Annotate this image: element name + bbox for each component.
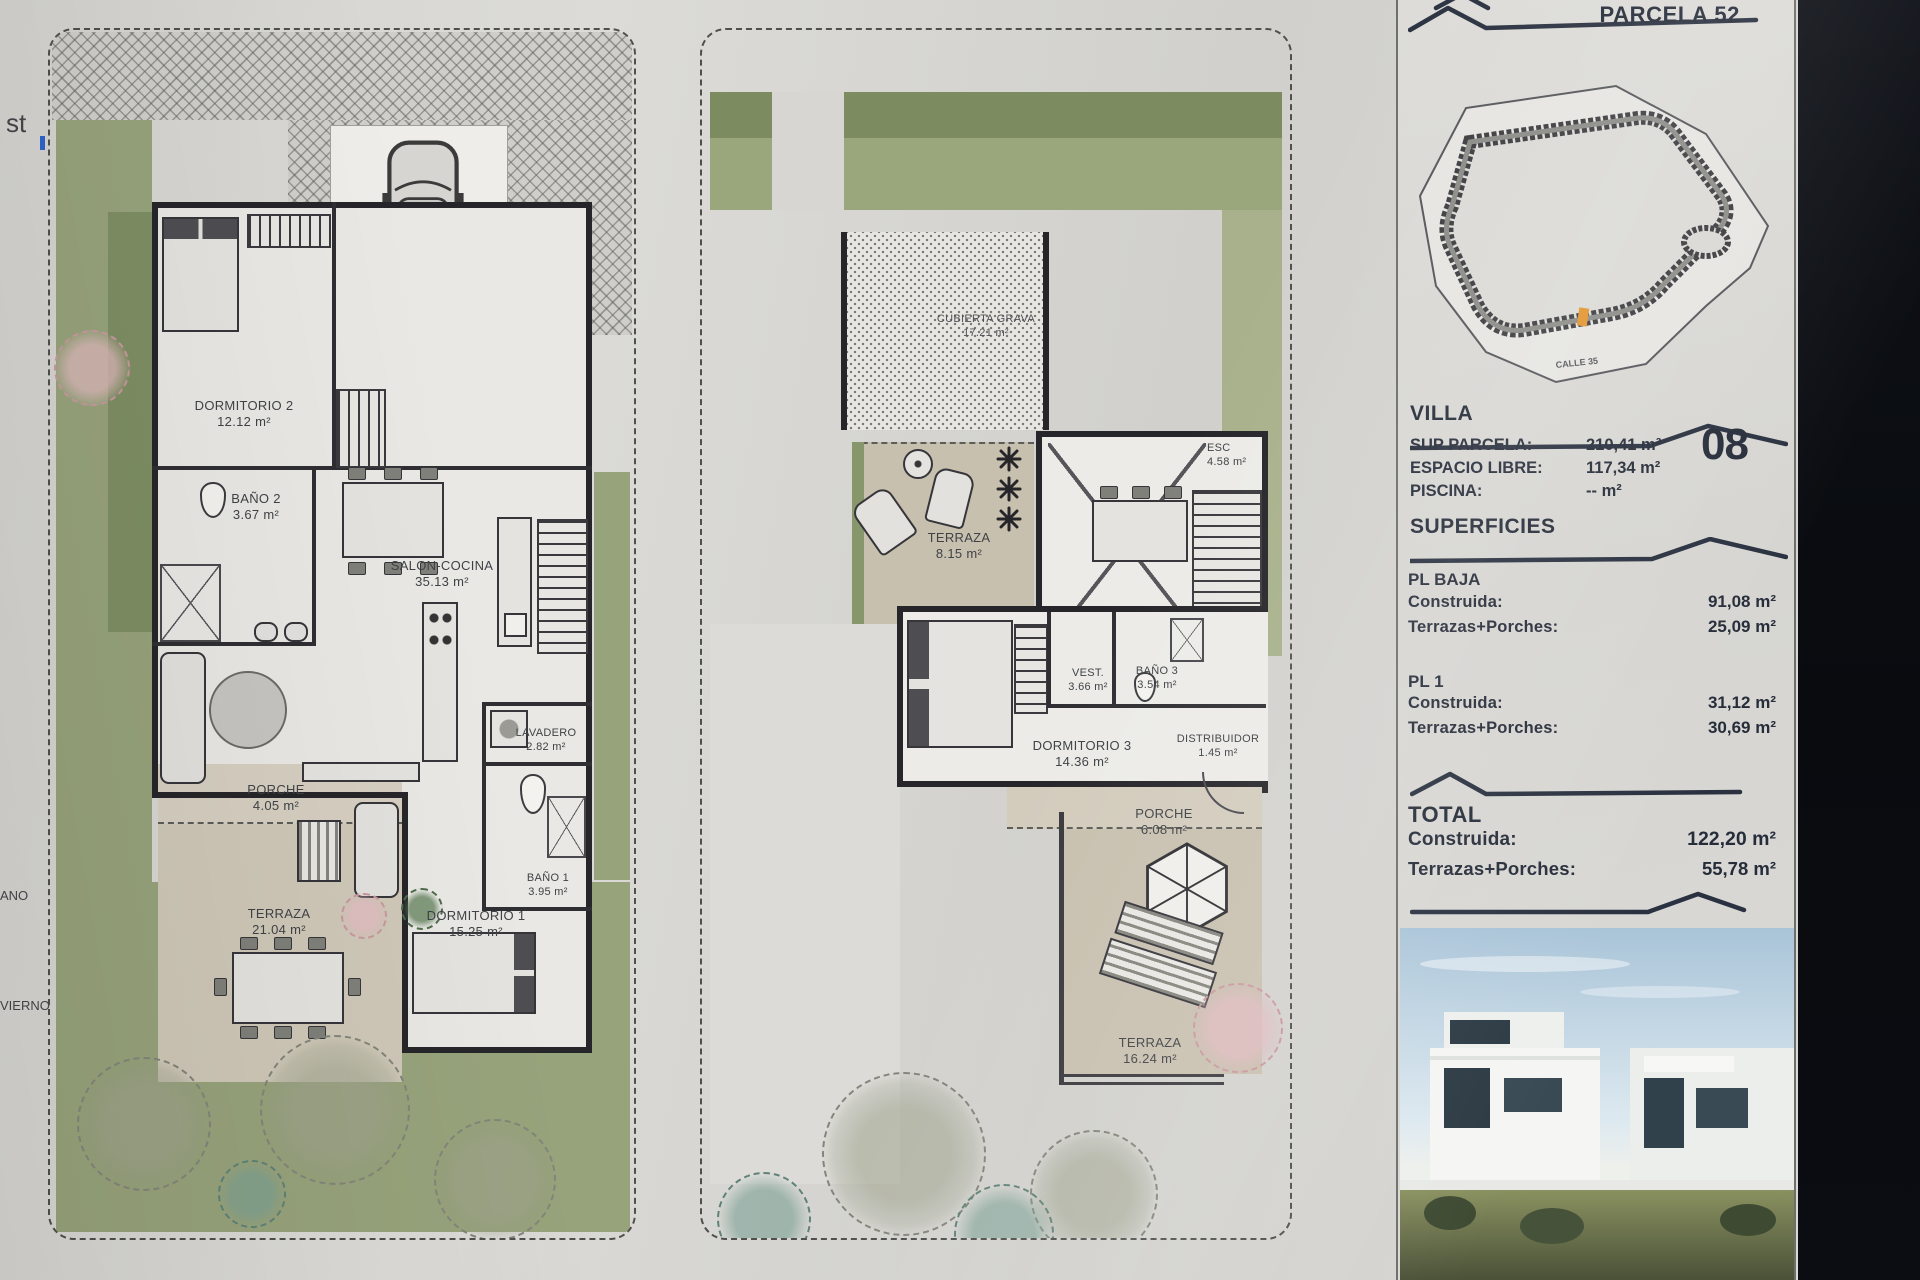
cursor-artifact	[40, 136, 45, 150]
wall	[482, 702, 592, 706]
dining-table-symbol	[342, 482, 444, 558]
roof-divider-icon	[1410, 537, 1788, 565]
total-row: Terrazas+Porches:55,78 m²	[1402, 858, 1790, 880]
surface-row: Construida:91,08 m²	[1402, 592, 1790, 612]
closet-symbol	[1014, 624, 1048, 714]
wall	[402, 1047, 592, 1053]
hedge	[852, 442, 864, 624]
site-map: CALLE 35	[1406, 46, 1788, 398]
armchair-symbol	[284, 622, 308, 642]
chair-symbol	[348, 467, 366, 480]
chair-symbol	[348, 978, 361, 996]
superficies-heading: SUPERFICIES	[1406, 515, 1556, 539]
villa-window	[1444, 1068, 1490, 1128]
chair-symbol	[1164, 486, 1182, 499]
flower-bush-symbol	[54, 330, 130, 406]
villa-row: ESPACIO LIBRE:117,34 m²	[1410, 459, 1660, 478]
tree-symbol	[260, 1035, 410, 1185]
armchair-symbol	[254, 622, 278, 642]
bush	[1424, 1196, 1476, 1230]
roof-divider-icon	[1410, 768, 1750, 798]
wall	[1064, 1074, 1224, 1077]
screen: st ANO VIERNO	[0, 0, 1920, 1280]
outdoor-sofa-symbol	[354, 802, 399, 898]
wall	[1047, 612, 1051, 708]
room-label: DORMITORIO 212.12 m²	[195, 398, 294, 431]
room-label: TERRAZA21.04 m²	[248, 906, 311, 939]
chair-symbol	[240, 1026, 258, 1039]
villa-window	[1450, 1020, 1510, 1044]
dining-table-symbol	[1092, 500, 1188, 562]
tree-symbol	[77, 1057, 211, 1191]
room-label: BAÑO 23.67 m²	[231, 491, 280, 524]
room-label: SALON-COCINA35.13 m²	[391, 558, 494, 591]
surface-row: Construida:31,12 m²	[1402, 693, 1790, 713]
pavement-hatch	[52, 32, 632, 120]
chair-symbol	[240, 937, 258, 950]
bed-pillows	[164, 219, 237, 239]
wall	[152, 202, 158, 798]
chair-symbol	[348, 562, 366, 575]
hedge	[108, 212, 152, 632]
chair-symbol	[384, 467, 402, 480]
tv-bench-symbol	[302, 762, 420, 782]
flower-bush-symbol	[341, 893, 387, 939]
shower-symbol	[547, 796, 586, 858]
flower-bush-symbol	[1193, 983, 1283, 1073]
chair-symbol	[308, 937, 326, 950]
wall	[897, 606, 903, 787]
room-label: DISTRIBUIDOR1.45 m²	[1177, 733, 1259, 761]
villa-railing	[1430, 1056, 1600, 1060]
bush	[1720, 1204, 1776, 1236]
room-label: DORMITORIO 314.36 m²	[1033, 738, 1132, 771]
floor-group-title: PL 1	[1408, 672, 1444, 692]
stairs-symbol	[537, 519, 588, 654]
wall	[312, 470, 316, 646]
room-label: PORCHE6.08 m²	[1135, 806, 1192, 839]
chair-symbol	[1100, 486, 1118, 499]
sofa-symbol	[160, 652, 206, 784]
kitchen-counter	[422, 602, 458, 762]
room-label: CUBIERTA GRAVA17.21 m²	[937, 313, 1035, 341]
shower-symbol	[160, 564, 221, 642]
kitchen-island	[497, 517, 532, 647]
bush	[1520, 1208, 1584, 1244]
outdoor-table-symbol	[232, 952, 344, 1024]
room-label: BAÑO 33.54 m²	[1136, 665, 1178, 693]
cloud	[1420, 956, 1630, 972]
bed-pillows	[909, 622, 929, 746]
surface-row: Terrazas+Porches:25,09 m²	[1402, 617, 1790, 637]
room-label: TERRAZA16.24 m²	[1119, 1035, 1182, 1068]
villa-block: VILLA SUP PARCELA:210,41 m² ESPACIO LIBR…	[1406, 402, 1786, 502]
plant-icon	[992, 446, 1026, 532]
total-title: TOTAL	[1408, 802, 1482, 828]
plot-first-floor: CUBIERTA GRAVA17.21 m² TERRAZA8.15 m² ES…	[700, 28, 1292, 1240]
parcel-title: PARCELA 52	[1600, 2, 1740, 28]
chair-symbol	[274, 937, 292, 950]
room-label: BAÑO 13.95 m²	[527, 872, 569, 900]
wall	[482, 762, 592, 766]
roof-divider-icon	[1410, 890, 1750, 918]
wall	[1043, 232, 1049, 430]
room-label: PORCHE4.05 m²	[247, 782, 304, 815]
bed-pillows	[514, 934, 534, 1012]
wall	[152, 642, 316, 646]
bed-symbol	[162, 217, 239, 332]
wall	[1036, 431, 1268, 437]
wall	[482, 702, 486, 911]
bed-symbol	[412, 932, 536, 1014]
villa-window	[1504, 1078, 1562, 1112]
room-label: DORMITORIO 115.25 m²	[427, 908, 526, 941]
sink-symbol	[504, 613, 527, 637]
surface-row: Terrazas+Porches:30,69 m²	[1402, 718, 1790, 738]
stove-burners	[426, 608, 454, 656]
round-table-symbol	[903, 449, 933, 479]
chair-symbol	[1132, 486, 1150, 499]
villa-photo	[1400, 928, 1794, 1280]
room-label: LAVADERO2.82 m²	[516, 727, 577, 755]
wall	[152, 202, 592, 208]
villa-row: SUP PARCELA:210,41 m²	[1410, 436, 1661, 455]
rug-symbol	[209, 671, 287, 749]
garden-path	[772, 92, 844, 210]
villa-window	[1644, 1078, 1684, 1148]
chair-symbol	[274, 1026, 292, 1039]
wardrobe-symbol	[247, 214, 331, 248]
edge-text-fragment: VIERNO	[0, 998, 50, 1013]
total-row: Construida:122,20 m²	[1402, 828, 1790, 851]
room-label: VEST.3.66 m²	[1068, 667, 1107, 695]
plot-ground-floor: DORMITORIO 212.12 m² BAÑO 23.67 m² SALON…	[48, 28, 636, 1240]
chair-symbol	[420, 467, 438, 480]
wall	[1047, 704, 1266, 708]
edge-text-fragment: st	[6, 108, 26, 139]
wall	[1112, 612, 1116, 708]
sun-lounger-symbol	[297, 820, 341, 882]
villa-number: 08	[1701, 424, 1748, 466]
closet-symbol	[336, 389, 386, 468]
wall	[897, 606, 1268, 612]
bed-symbol	[907, 620, 1013, 748]
edge-text-fragment: ANO	[0, 888, 28, 903]
info-panel: PARCELA 52 CALLE 35 VILLA SUP PARCELA:21…	[1396, 0, 1796, 1280]
shower-symbol	[1170, 618, 1204, 662]
garden-grass	[594, 472, 630, 880]
chair-symbol	[214, 978, 227, 996]
screen-bezel	[1798, 0, 1920, 1280]
room-label: ESC4.58 m²	[1207, 442, 1246, 470]
cloud	[1580, 986, 1740, 998]
villa-window	[1696, 1088, 1748, 1128]
room-label: TERRAZA8.15 m²	[928, 530, 991, 563]
tree-symbol	[218, 1160, 286, 1228]
floor-group-title: PL BAJA	[1408, 570, 1480, 590]
villa-row: PISCINA:-- m²	[1410, 482, 1622, 501]
wall	[1064, 1082, 1224, 1085]
tree-symbol	[434, 1119, 556, 1240]
villa-parapet	[1644, 1056, 1734, 1072]
wall	[1059, 812, 1064, 1085]
wall	[841, 232, 847, 430]
